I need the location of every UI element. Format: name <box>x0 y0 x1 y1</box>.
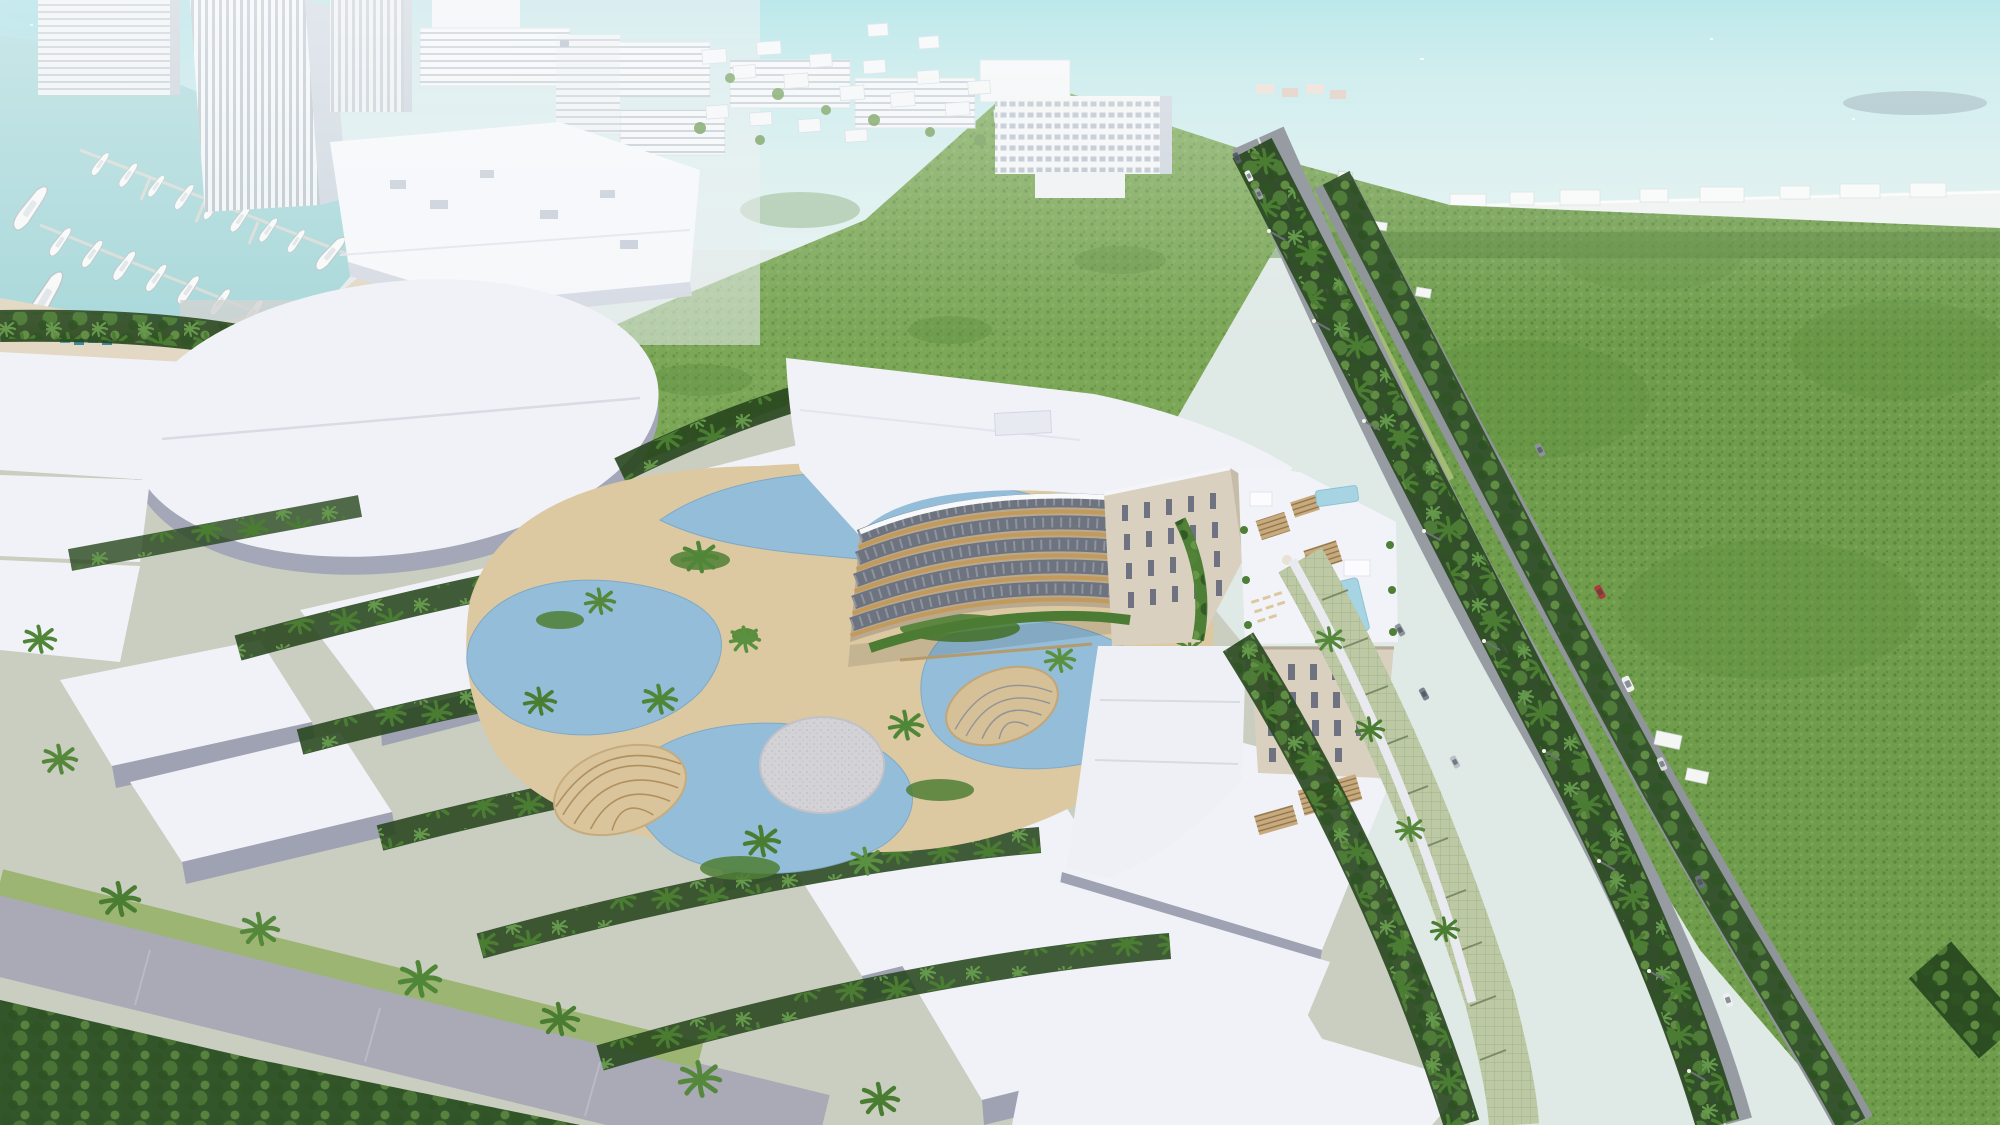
distance-haze <box>0 0 2000 340</box>
pebble-plaza <box>760 717 884 813</box>
parked-car <box>1418 687 1429 701</box>
aerial-render <box>0 0 2000 1125</box>
roof-unit <box>994 411 1051 436</box>
block-roof <box>0 560 140 662</box>
car <box>1722 992 1733 1008</box>
cabana <box>1250 492 1272 506</box>
scene-canvas <box>0 0 2000 1125</box>
parked-car <box>1449 755 1460 769</box>
cabana <box>1344 560 1370 576</box>
